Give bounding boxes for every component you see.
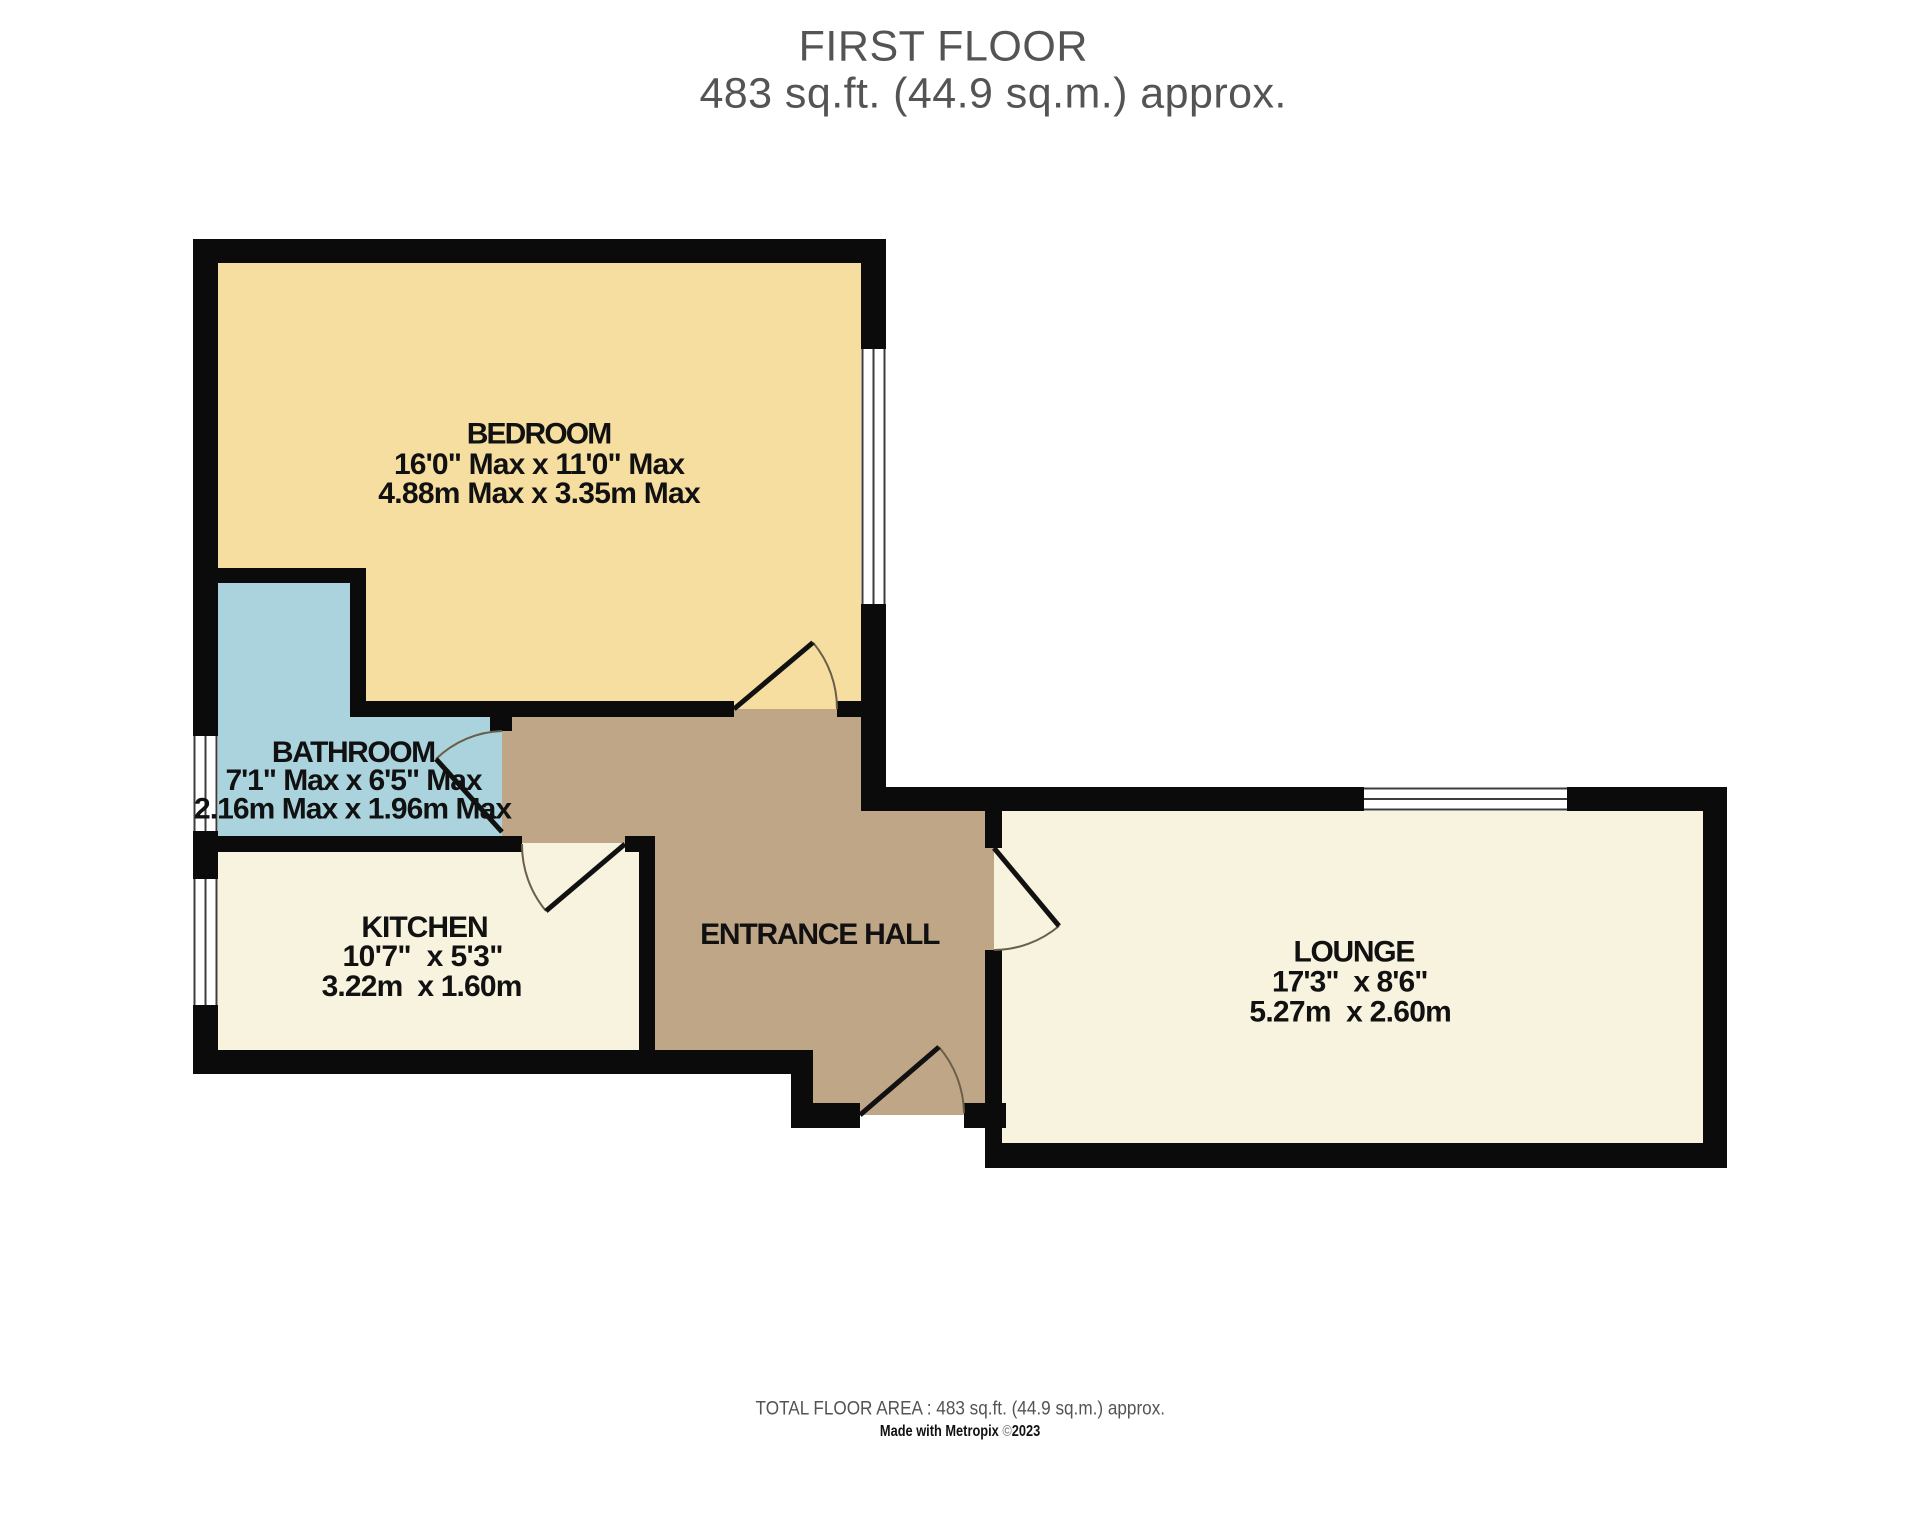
svg-text:483 sq.ft. (44.9 sq.m.) approx: 483 sq.ft. (44.9 sq.m.) approx. [699, 70, 1286, 118]
svg-text:BEDROOM: BEDROOM [467, 418, 613, 451]
svg-text:16'0" Max x 11'0" Max: 16'0" Max x 11'0" Max [394, 448, 685, 481]
svg-text:5.27m x 2.60m: 5.27m x 2.60m [1249, 995, 1452, 1028]
svg-text:ENTRANCE HALL: ENTRANCE HALL [700, 918, 940, 951]
svg-text:10'7" x 5'3": 10'7" x 5'3" [343, 940, 504, 973]
svg-text:FIRST FLOOR: FIRST FLOOR [799, 23, 1088, 71]
svg-text:4.88m Max x 3.35m Max: 4.88m Max x 3.35m Max [378, 477, 701, 510]
svg-text:TOTAL FLOOR AREA : 483 sq.ft.: TOTAL FLOOR AREA : 483 sq.ft. (44.9 sq.m… [756, 1398, 1166, 1420]
svg-text:17'3" x 8'6": 17'3" x 8'6" [1272, 965, 1429, 998]
svg-text:LOUNGE: LOUNGE [1293, 935, 1415, 968]
svg-text:Made with Metropix ©2023: Made with Metropix ©2023 [880, 1423, 1041, 1440]
svg-text:2.16m Max x 1.96m Max: 2.16m Max x 1.96m Max [194, 793, 512, 826]
svg-text:3.22m x 1.60m: 3.22m x 1.60m [322, 970, 523, 1003]
